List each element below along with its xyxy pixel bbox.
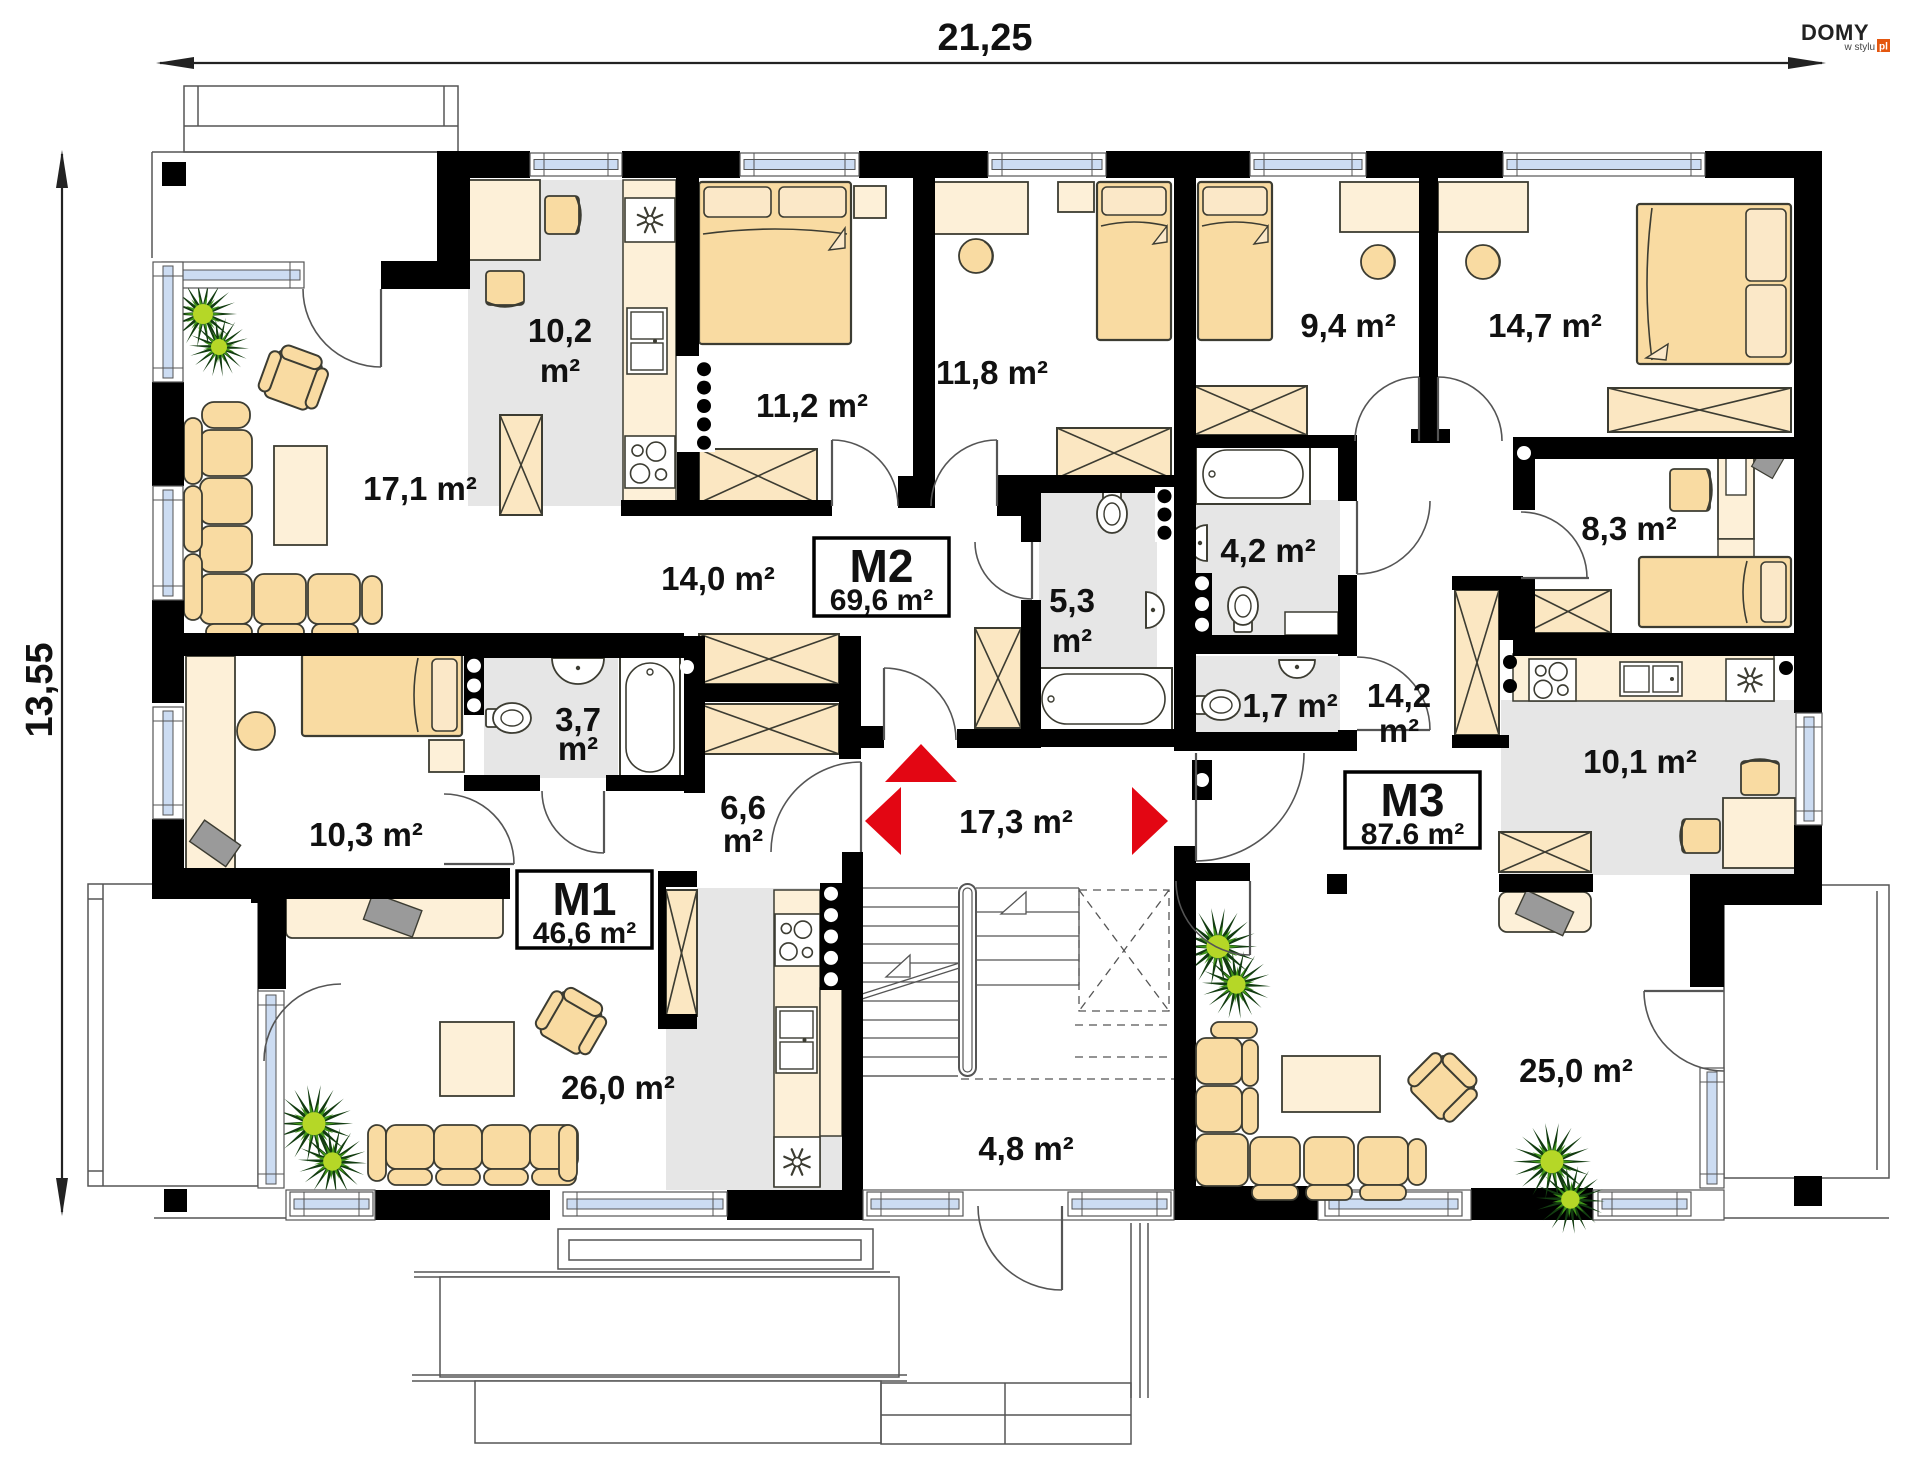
svg-text:25,0 m²: 25,0 m²	[1519, 1052, 1633, 1089]
svg-text:m²: m²	[1052, 622, 1092, 659]
svg-text:14,2: 14,2	[1367, 677, 1431, 714]
svg-text:10,3 m²: 10,3 m²	[309, 816, 423, 853]
svg-text:1,7 m²: 1,7 m²	[1242, 687, 1337, 724]
svg-text:m²: m²	[723, 822, 763, 859]
svg-text:pl: pl	[1879, 42, 1888, 53]
svg-text:17,1 m²: 17,1 m²	[363, 470, 477, 507]
svg-text:14,0 m²: 14,0 m²	[661, 560, 775, 597]
svg-text:46,6 m²: 46,6 m²	[533, 917, 636, 950]
svg-text:5,3: 5,3	[1049, 582, 1095, 619]
svg-text:9,4 m²: 9,4 m²	[1300, 307, 1395, 344]
svg-text:10,2: 10,2	[528, 312, 592, 349]
svg-text:4,2 m²: 4,2 m²	[1220, 532, 1315, 569]
svg-text:m²: m²	[540, 352, 580, 389]
svg-text:13,55: 13,55	[19, 642, 61, 737]
svg-text:4,8 m²: 4,8 m²	[978, 1130, 1073, 1167]
svg-text:14,7 m²: 14,7 m²	[1488, 307, 1602, 344]
svg-text:87.6 m²: 87.6 m²	[1361, 818, 1464, 851]
svg-text:w stylu: w stylu	[1843, 42, 1875, 53]
svg-text:26,0 m²: 26,0 m²	[561, 1069, 675, 1106]
svg-text:10,1 m²: 10,1 m²	[1583, 743, 1697, 780]
svg-text:11,2 m²: 11,2 m²	[756, 387, 868, 424]
svg-text:6,6: 6,6	[720, 789, 766, 826]
svg-text:8,3 m²: 8,3 m²	[1581, 510, 1676, 547]
svg-text:69,6 m²: 69,6 m²	[830, 584, 933, 617]
svg-text:11,8 m²: 11,8 m²	[936, 354, 1048, 391]
svg-text:21,25: 21,25	[937, 17, 1032, 59]
svg-text:17,3 m²: 17,3 m²	[959, 803, 1073, 840]
svg-text:m²: m²	[558, 730, 598, 767]
svg-text:m²: m²	[1379, 712, 1419, 749]
